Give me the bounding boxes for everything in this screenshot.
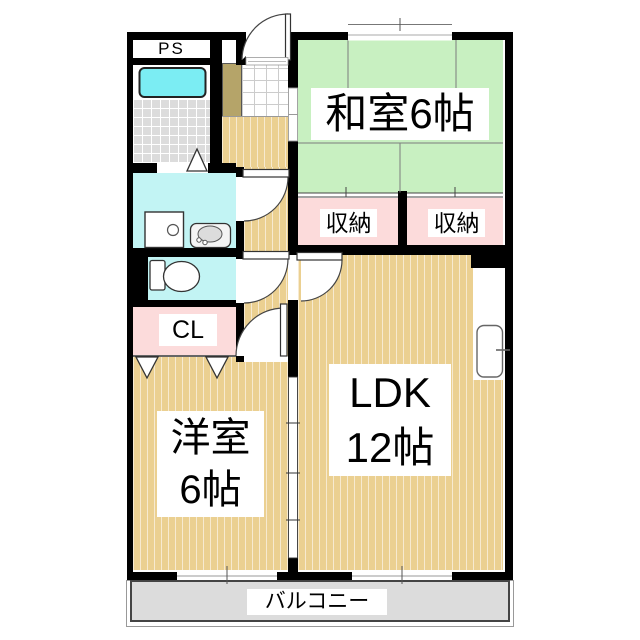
wall-toilet-closet (127, 300, 236, 307)
western-room-label-line2: 6帖 (179, 464, 241, 516)
wall-top-japanese-room-b (452, 32, 513, 40)
wall-bottom-a (127, 572, 177, 580)
wall-center-c (288, 300, 298, 377)
wall-kitchen-stub (471, 245, 506, 268)
wall-bath-entry-divider (210, 32, 222, 170)
closet-label: CL (159, 314, 217, 346)
wall-storage-divider (398, 191, 407, 245)
wall-center-b (288, 141, 298, 245)
japanese-room-sliding-door-icon (288, 88, 298, 141)
shoe-cabinet (222, 63, 242, 117)
window-icon (348, 18, 452, 41)
wall-bottom-b (277, 572, 352, 580)
wall-hall-a (236, 167, 244, 177)
wall-right-outer (505, 32, 513, 580)
bathroom-tile-floor (133, 100, 210, 163)
entrance-door-icon (242, 14, 291, 65)
wall-segment (133, 58, 210, 65)
entryway-tile-floor (242, 65, 288, 117)
western-room-label: 洋室 6帖 (157, 411, 264, 517)
hallway-floor-lower (244, 167, 288, 362)
wall-center-a (288, 32, 298, 88)
doorway-threshold (237, 356, 288, 362)
floor-plan: PS (0, 0, 640, 640)
bathroom-floor (133, 65, 210, 100)
wall-hall-c (236, 303, 244, 362)
wall-center-d (288, 558, 298, 573)
japanese-room-label: 和室6帖 (311, 88, 489, 140)
kitchen-counter (473, 268, 503, 380)
wall-bottom-c (452, 572, 513, 580)
ldk-label: LDK 12帖 (329, 364, 451, 476)
wall-toilet-left-block (127, 248, 148, 307)
wall-below-bath-b (208, 163, 236, 173)
hallway-floor-upper (222, 117, 288, 167)
western-room-label-line1: 洋室 (171, 412, 251, 464)
wall-entry-stub (236, 32, 246, 65)
wall-below-bath-a (127, 163, 157, 173)
wall-hall-b (236, 221, 244, 259)
washroom-floor (133, 173, 236, 248)
storage-left-label: 収納 (320, 209, 377, 237)
ldk-label-line2: 12帖 (346, 420, 435, 475)
pipe-space-label: PS (133, 40, 210, 58)
balcony-label: バルコニー (247, 589, 387, 615)
ldk-label-line1: LDK (349, 365, 431, 420)
wall-top-left (127, 32, 246, 40)
storage-right-label: 収納 (428, 209, 485, 237)
toilet-floor (148, 255, 236, 300)
